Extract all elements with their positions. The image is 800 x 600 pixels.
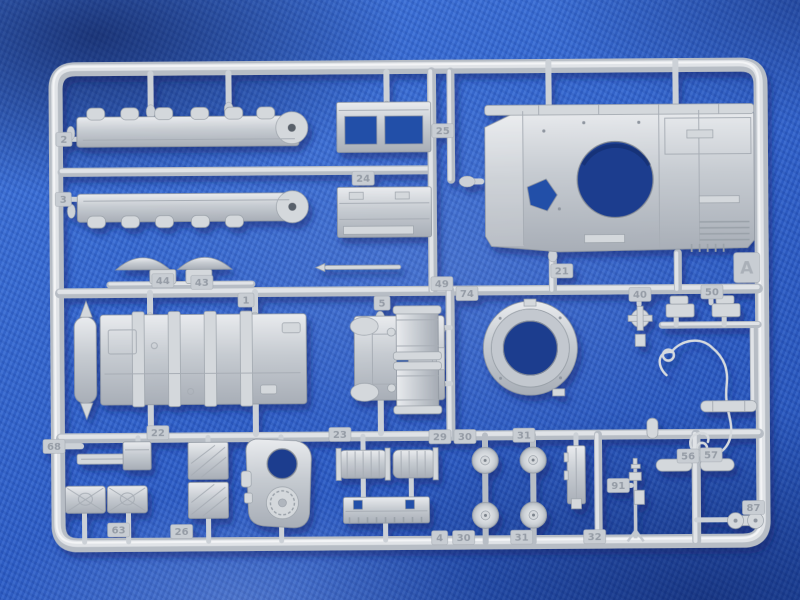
part-number-tag: 43 (191, 275, 213, 289)
part-number-tag: 32 (584, 530, 606, 544)
sprue-letter-tag: A (734, 252, 760, 282)
part-number-tag: 49 (431, 277, 453, 291)
part-number-tag: 44 (152, 274, 174, 288)
svg-text:57: 57 (704, 450, 718, 461)
part-jerry-can-right-63 (107, 486, 147, 513)
part-number-tag: 23 (329, 427, 351, 441)
part-number-tag: 63 (108, 523, 130, 537)
svg-text:49: 49 (435, 279, 449, 290)
svg-text:22: 22 (151, 428, 165, 439)
part-number-tag: 21 (551, 264, 573, 278)
svg-text:24: 24 (356, 174, 370, 185)
part-intake-grille (343, 497, 429, 524)
part-number-tag: 22 (147, 426, 169, 440)
svg-text:87: 87 (746, 503, 760, 514)
part-cleaning-rod (316, 263, 401, 272)
svg-text:31: 31 (517, 431, 531, 442)
svg-text:50: 50 (705, 287, 719, 298)
part-number-tag: 1 (238, 293, 254, 307)
part-number-tag: 4 (432, 531, 448, 545)
svg-text:A: A (740, 259, 754, 279)
part-ribbed-cylinder-right (393, 448, 438, 480)
svg-text:44: 44 (156, 276, 170, 287)
svg-text:30: 30 (457, 533, 471, 544)
part-engine-panel-1 (74, 300, 307, 420)
part-number-tag: 31 (511, 530, 533, 544)
photo-of-model-kit-sprue: 2 3 24 25 21 A 44 43 1 5 49 74 40 50 68 … (0, 0, 800, 600)
part-number-tag: 57 (700, 448, 722, 462)
part-small-box-22 (123, 442, 151, 470)
svg-text:30: 30 (458, 432, 472, 443)
svg-text:74: 74 (460, 289, 474, 300)
part-hatched-bin-upper-26 (188, 442, 228, 479)
part-tow-cable (646, 340, 731, 457)
part-number-tag: 25 (432, 124, 454, 138)
svg-text:23: 23 (333, 430, 347, 441)
part-number-tag: 30 (453, 530, 475, 544)
part-number-tag: 31 (513, 428, 535, 442)
part-number-tag: 91 (607, 478, 629, 492)
svg-text:5: 5 (379, 299, 386, 310)
svg-text:25: 25 (436, 126, 450, 137)
part-periscope-left (666, 296, 694, 317)
svg-text:68: 68 (47, 442, 61, 453)
part-jerry-can-left-63 (65, 486, 105, 513)
svg-text:40: 40 (633, 290, 647, 301)
part-number-tag: 68 (43, 439, 65, 453)
part-machine-gun-91 (627, 458, 645, 541)
svg-text:63: 63 (112, 525, 126, 536)
part-number-tag: 24 (352, 171, 374, 185)
svg-text:31: 31 (515, 533, 529, 544)
part-mount-slab-32 (564, 446, 585, 509)
svg-text:29: 29 (433, 432, 447, 443)
svg-text:56: 56 (681, 451, 695, 462)
svg-text:26: 26 (175, 527, 189, 538)
svg-text:2: 2 (60, 135, 67, 146)
part-hatched-bin-lower-26 (188, 482, 228, 518)
svg-text:21: 21 (555, 266, 569, 277)
part-turret-ring-21 (483, 299, 578, 397)
part-number-tag: 5 (374, 296, 390, 310)
svg-text:43: 43 (195, 278, 209, 289)
part-open-frame-box-25 (337, 102, 431, 153)
part-number-tag: 56 (677, 449, 699, 463)
sprue-illustration: 2 3 24 25 21 A 44 43 1 5 49 74 40 50 68 … (0, 0, 800, 600)
part-stowage-box-24 (337, 187, 431, 238)
svg-text:4: 4 (436, 533, 443, 544)
svg-text:3: 3 (60, 195, 67, 206)
part-number-tag: 26 (171, 524, 193, 538)
part-fuel-drum-upper (387, 306, 441, 360)
part-roller-87 (727, 512, 763, 528)
svg-text:32: 32 (588, 532, 602, 543)
part-cylinder-fitting-upper (701, 401, 757, 412)
part-number-tag: 3 (55, 192, 71, 206)
svg-text:91: 91 (611, 481, 625, 492)
part-fender-strip-2 (77, 107, 308, 148)
part-number-tag: 30 (454, 429, 476, 443)
part-number-tag: 29 (429, 430, 451, 444)
part-number-tag: 2 (56, 132, 72, 146)
part-number-tag: 40 (629, 287, 651, 301)
part-turret-roof (241, 439, 312, 528)
part-sprocket-fitting-40 (628, 306, 652, 346)
part-upper-hull (485, 104, 755, 254)
part-number-tag: 87 (742, 500, 764, 514)
svg-text:1: 1 (242, 296, 249, 307)
part-fender-strip-3 (77, 191, 308, 229)
part-number-tag: 74 (456, 286, 478, 300)
part-number-tag: 50 (701, 285, 723, 299)
part-ribbed-cylinder-left (336, 448, 390, 480)
part-fuel-drum-lower (387, 362, 441, 414)
sprue-frame-A: 2 3 24 25 21 A 44 43 1 5 49 74 40 50 68 … (40, 60, 764, 547)
